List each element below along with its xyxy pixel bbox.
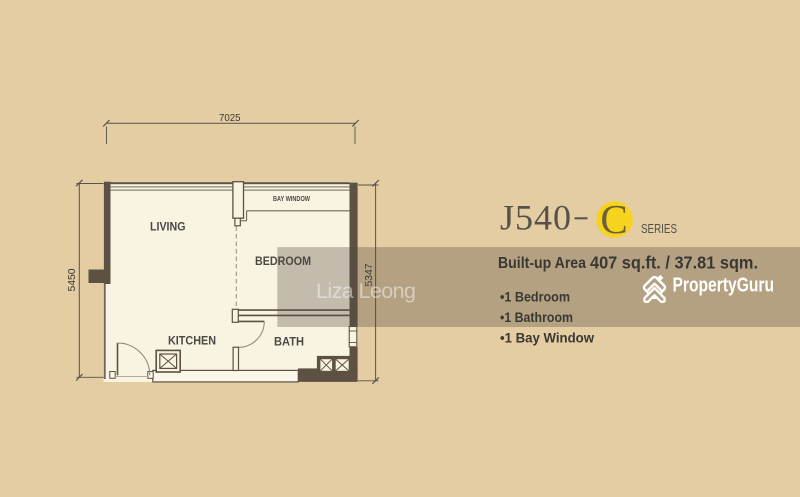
svg-text:LIVING: LIVING [150, 220, 186, 234]
svg-text:C: C [600, 196, 627, 242]
svg-text:J540: J540 [500, 198, 571, 238]
svg-text:•1 Bathroom: •1 Bathroom [500, 309, 573, 325]
svg-text:SERIES: SERIES [641, 221, 677, 236]
svg-text:Liza Leong: Liza Leong [316, 279, 416, 303]
svg-text:•1 Bedroom: •1 Bedroom [500, 289, 570, 305]
svg-text:Built-up Area: Built-up Area [498, 255, 586, 272]
svg-text:•1 Bay Window: •1 Bay Window [500, 330, 594, 346]
svg-text:5450: 5450 [66, 268, 78, 291]
svg-text:PropertyGuru: PropertyGuru [673, 274, 775, 297]
svg-text:BAY WINDOW: BAY WINDOW [273, 196, 310, 203]
svg-text:7025: 7025 [219, 112, 241, 124]
svg-text:407 sq.ft. / 37.81 sqm.: 407 sq.ft. / 37.81 sqm. [590, 253, 758, 273]
svg-text:KITCHEN: KITCHEN [168, 333, 216, 347]
svg-text:BATH: BATH [274, 335, 304, 349]
